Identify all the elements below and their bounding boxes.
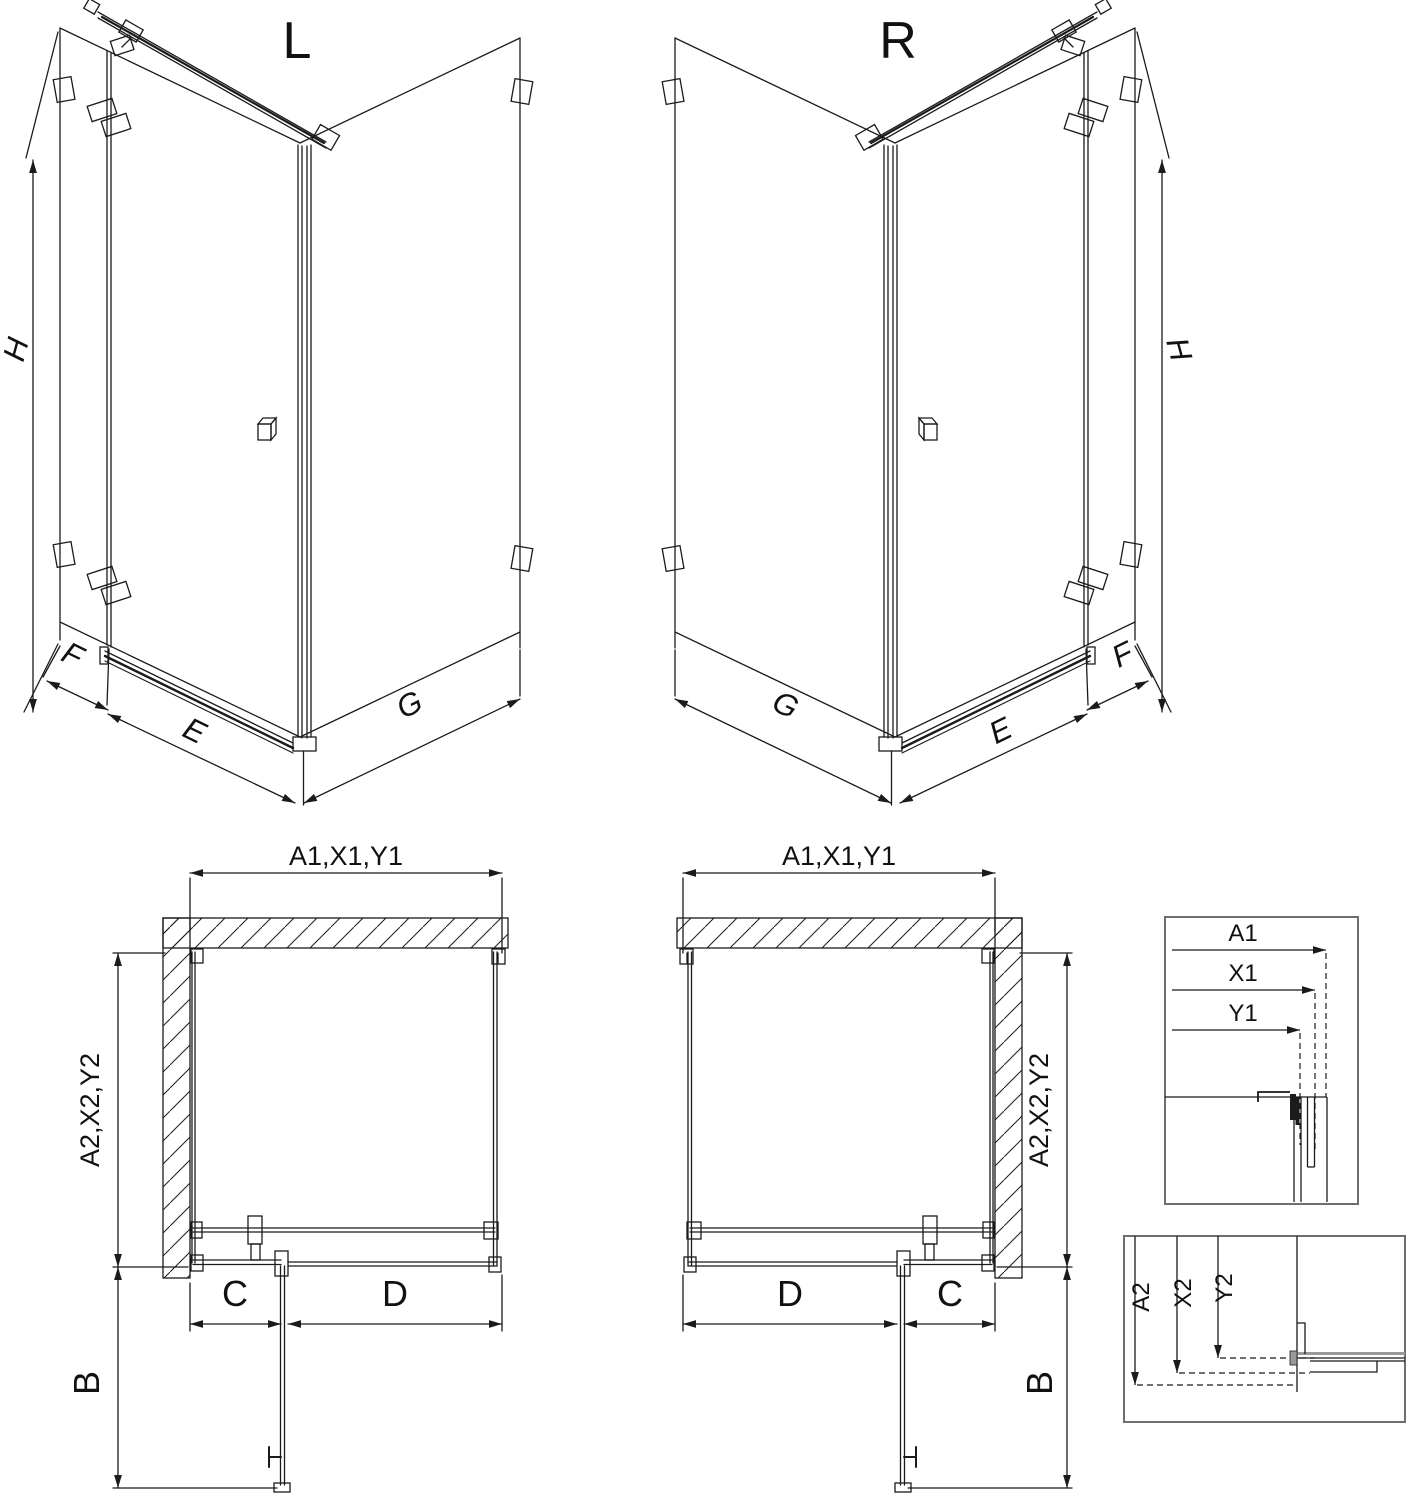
dim-label-e-left: E — [178, 710, 212, 751]
plan-right-d-label: D — [777, 1273, 803, 1314]
dim-label-g-left: G — [391, 684, 428, 726]
dim-label-h-right: H — [1159, 334, 1199, 365]
detail-a2-label: A2 — [1128, 1282, 1155, 1311]
plan-left-b-label: B — [66, 1371, 107, 1395]
plan-right-b-label: B — [1019, 1371, 1060, 1395]
plan-right-width-label: A1,X1,Y1 — [782, 841, 896, 871]
detail-y2-label: Y2 — [1211, 1273, 1238, 1302]
wall-hatching-left-plan — [163, 918, 508, 1278]
plan-right-c-label: C — [937, 1273, 963, 1314]
plan-left-d-label: D — [382, 1273, 408, 1314]
detail-y1-label: Y1 — [1228, 1000, 1257, 1027]
detail-x2-label: X2 — [1170, 1278, 1197, 1307]
technical-drawing-canvas: L H F E G R H F E G — [0, 0, 1416, 1499]
view-label-right: R — [879, 12, 917, 70]
plan-right-depth-label: A2,X2,Y2 — [1024, 1053, 1054, 1167]
wall-hatching-right-plan — [677, 918, 1022, 1278]
plan-view-left: A1,X1,Y1 A2,X2,Y2 C D B — [55, 835, 615, 1499]
detail-depth-dimensions: A2 X2 Y2 — [1115, 1225, 1415, 1435]
isometric-view-right: R H F E G — [625, 0, 1185, 815]
detail-x1-label: X1 — [1228, 960, 1257, 987]
view-label-left: L — [283, 12, 312, 70]
detail-width-dimensions: A1 X1 Y1 — [1155, 905, 1370, 1215]
plan-left-c-label: C — [222, 1273, 248, 1314]
plan-left-depth-label: A2,X2,Y2 — [75, 1053, 105, 1167]
plan-left-width-label: A1,X1,Y1 — [289, 841, 403, 871]
isometric-view-left: L H F E G — [10, 0, 570, 815]
dim-label-f-left: F — [56, 635, 90, 676]
plan-view-right: A1,X1,Y1 A2,X2,Y2 D C B — [590, 835, 1150, 1499]
detail-a1-label: A1 — [1228, 920, 1257, 947]
dim-label-g-right: G — [767, 684, 804, 726]
enclosure-line-art — [24, 0, 533, 805]
dim-label-h-left: H — [0, 333, 36, 364]
dim-label-e-right: E — [983, 710, 1017, 751]
